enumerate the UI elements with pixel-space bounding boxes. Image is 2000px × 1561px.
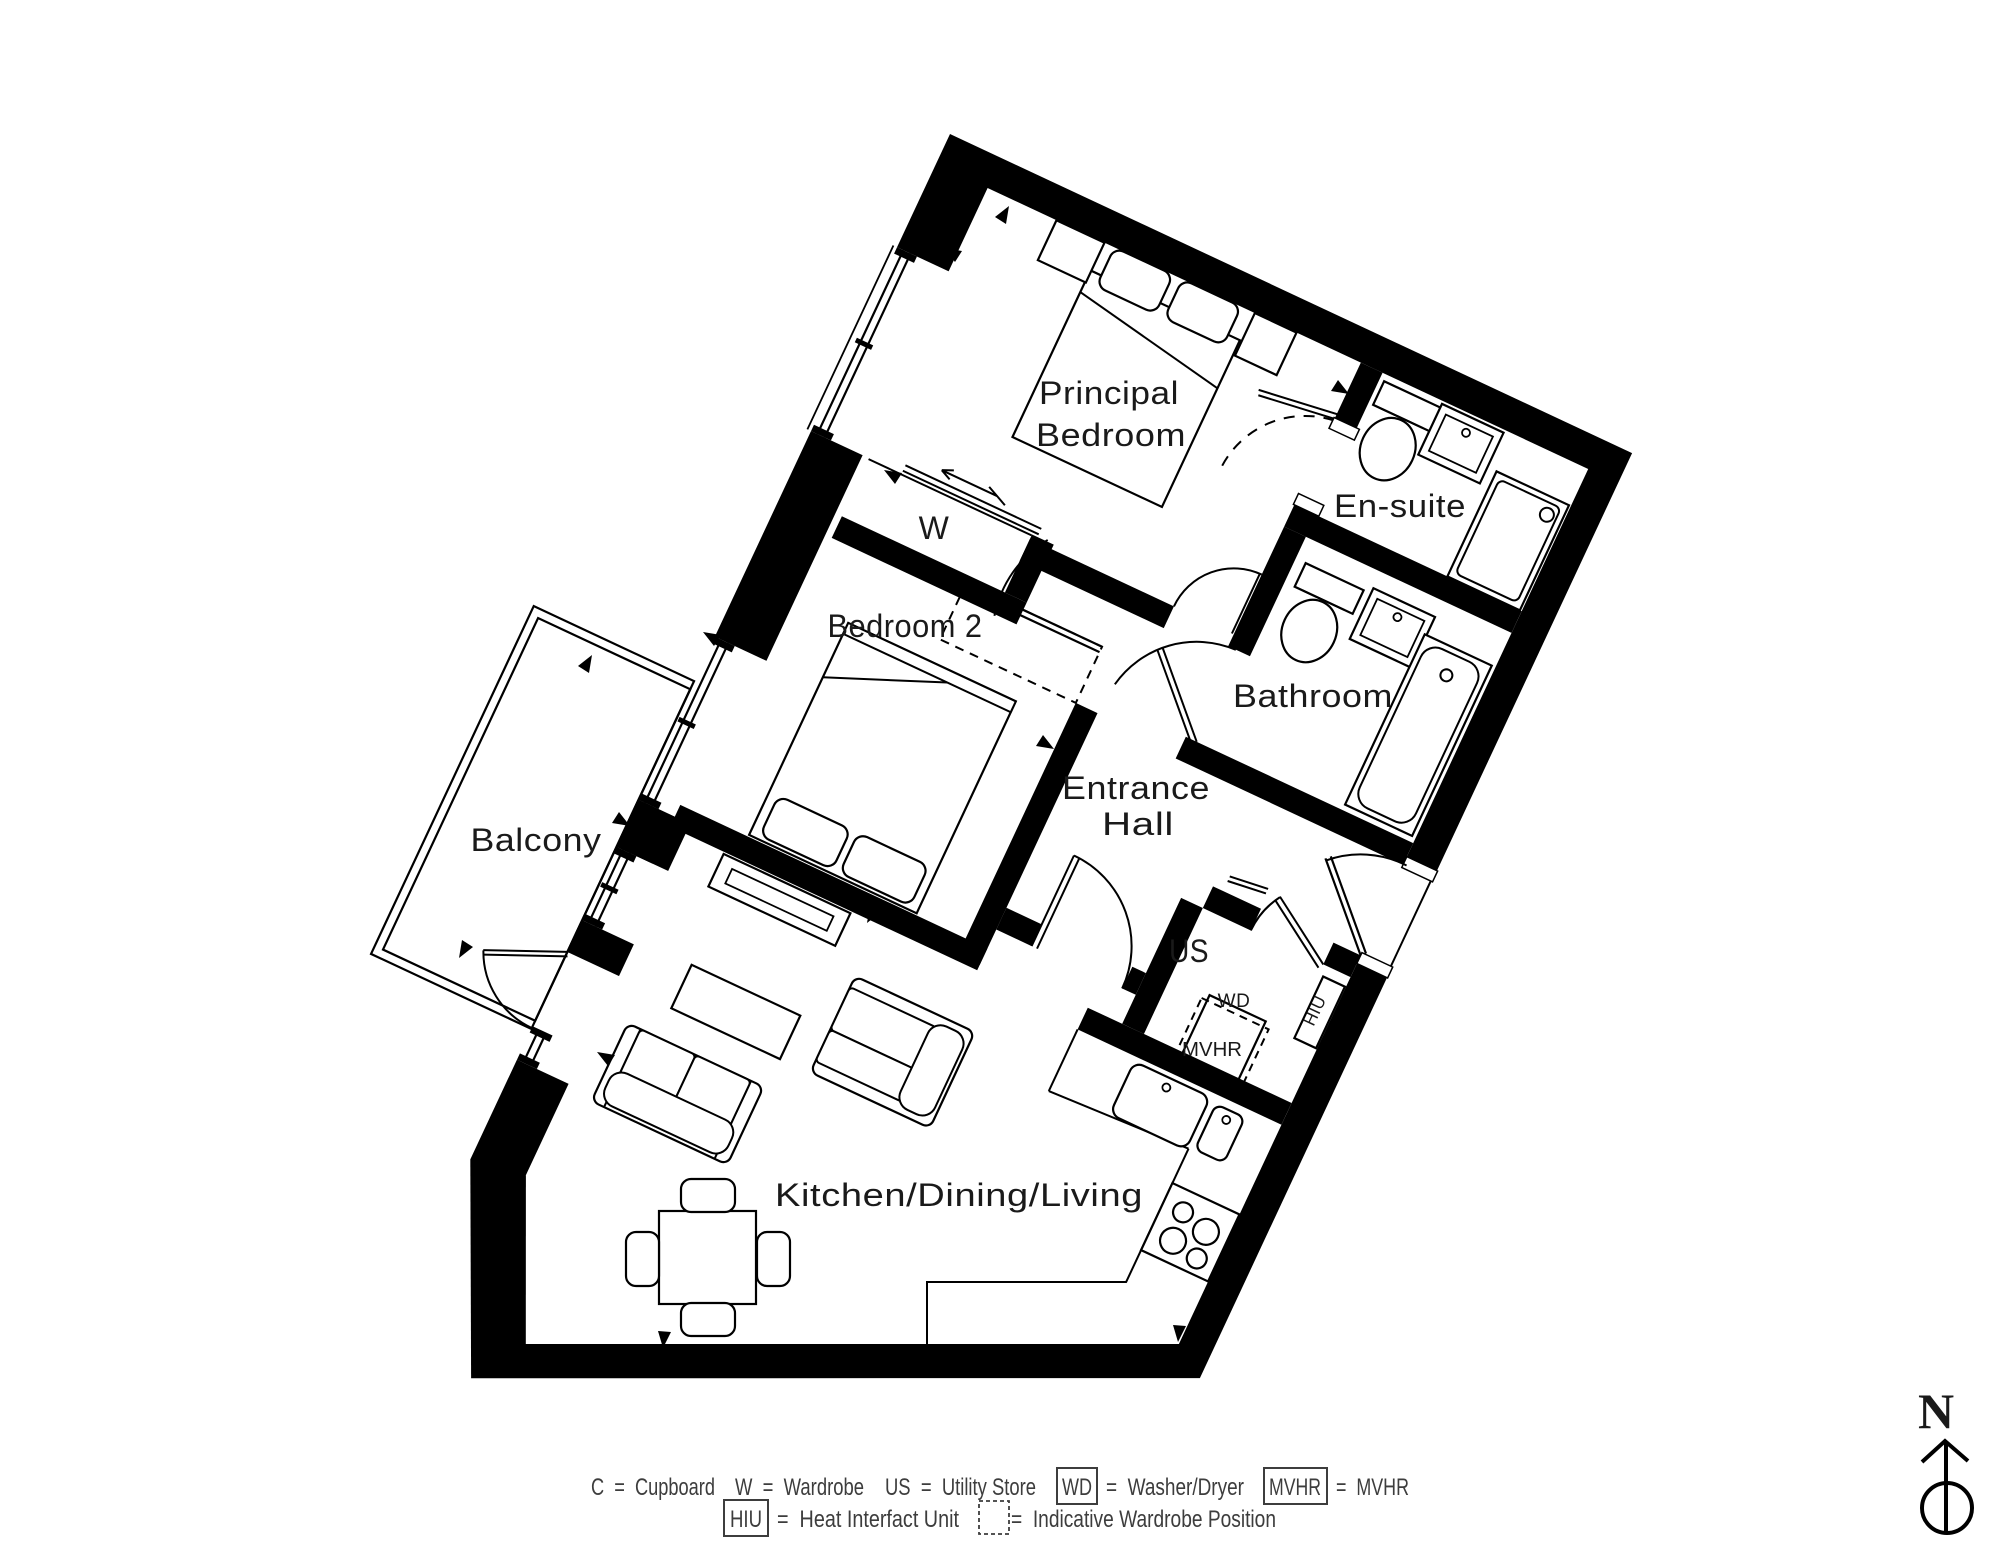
svg-text:= MVHR: = MVHR [1336,1474,1409,1501]
svg-text:Bathroom: Bathroom [1233,678,1393,714]
svg-text:US = Utility Store: US = Utility Store [885,1474,1036,1501]
svg-text:= Washer/Dryer: = Washer/Dryer [1106,1474,1244,1501]
svg-text:Entrance: Entrance [1062,770,1210,806]
svg-text:WD: WD [1218,991,1251,1012]
svg-text:= Indicative Wardrobe Positio: = Indicative Wardrobe Position [1011,1506,1276,1533]
svg-text:C = Cupboard: C = Cupboard [591,1474,715,1501]
svg-text:= Heat Interfact Unit: = Heat Interfact Unit [777,1506,959,1533]
svg-text:US: US [1169,933,1209,969]
svg-text:Bedroom 2: Bedroom 2 [828,608,983,644]
svg-text:N: N [1918,1383,1954,1439]
svg-text:W: W [919,510,950,546]
svg-text:Bedroom: Bedroom [1036,417,1186,453]
svg-text:Kitchen/Dining/Living: Kitchen/Dining/Living [775,1177,1143,1213]
svg-text:MVHR: MVHR [1269,1474,1321,1501]
svg-text:En-suite: En-suite [1334,488,1466,524]
svg-text:Hall: Hall [1102,806,1174,842]
svg-text:W = Wardrobe: W = Wardrobe [735,1474,864,1501]
svg-text:WD: WD [1062,1474,1092,1501]
svg-text:Principal: Principal [1039,375,1179,411]
svg-text:MVHR: MVHR [1182,1039,1242,1061]
svg-text:HIU: HIU [730,1506,762,1533]
svg-text:Balcony: Balcony [471,822,602,858]
